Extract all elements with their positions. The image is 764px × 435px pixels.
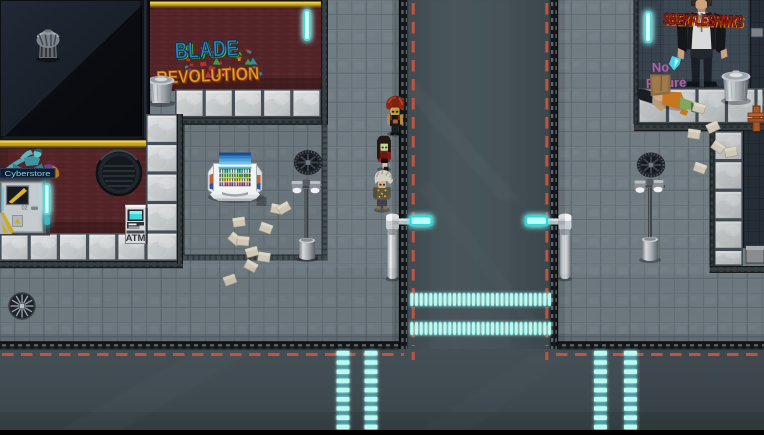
- svg-text:Cyberstore: Cyberstore: [5, 171, 51, 178]
- svg-text:SBEKFLESHWKS: SBEKFLESHWKS: [663, 11, 744, 31]
- svg-text:02: 02: [22, 206, 28, 212]
- svg-text:ATM: ATM: [126, 233, 146, 244]
- svg-text:BLADE: BLADE: [174, 34, 239, 63]
- svg-text:No: No: [652, 59, 670, 75]
